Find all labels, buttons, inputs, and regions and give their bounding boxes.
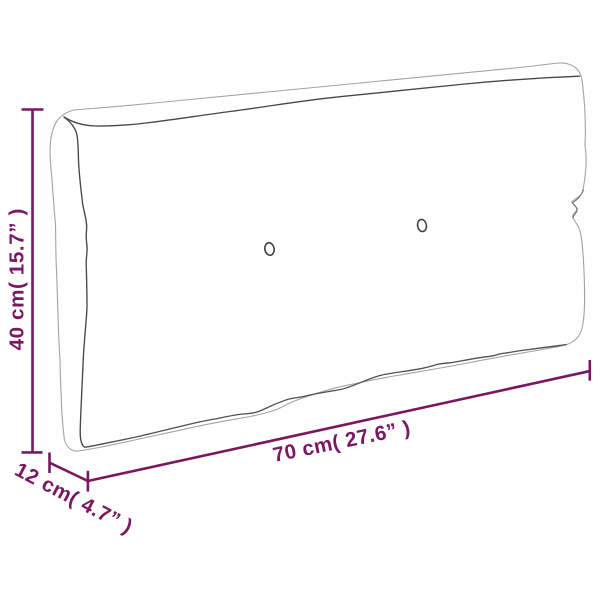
svg-text:40 cm( 15.7” ): 40 cm( 15.7” )	[5, 208, 28, 350]
